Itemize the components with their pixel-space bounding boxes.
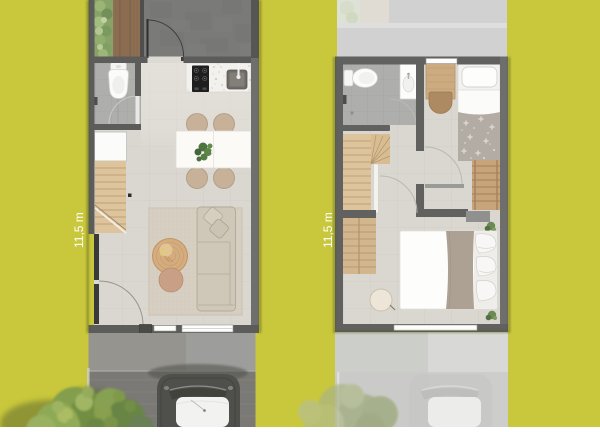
svg-text:11,5 m: 11,5 m: [321, 212, 335, 248]
svg-text:11,5 m: 11,5 m: [72, 212, 86, 248]
